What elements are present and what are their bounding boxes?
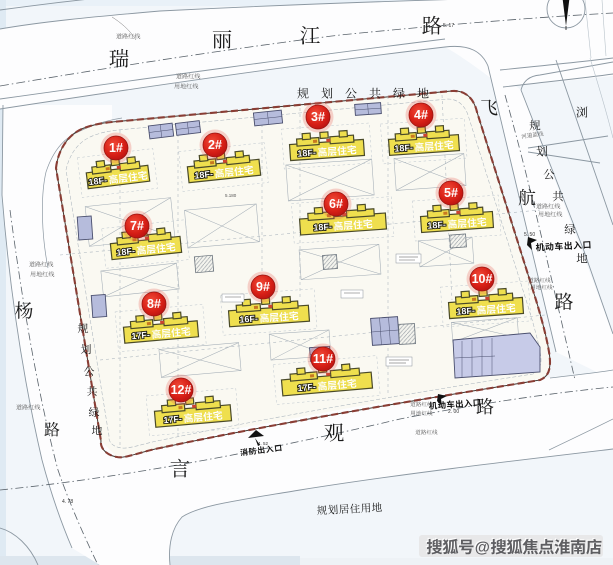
svg-text:18F-: 18F- [313,221,332,232]
svg-text:8#: 8# [147,297,161,311]
svg-text:18F-: 18F- [116,246,135,258]
svg-text:5. 17: 5. 17 [443,23,454,29]
svg-text:@: @ [475,539,490,556]
svg-text:4. 52: 4. 52 [258,441,269,446]
svg-text:17F-: 17F- [131,330,150,342]
svg-text:17F-: 17F- [297,382,316,394]
svg-text:18F-: 18F- [194,169,213,181]
svg-text:4#: 4# [414,108,428,122]
svg-text:18F-: 18F- [297,147,316,158]
svg-text:5.180: 5.180 [225,193,237,198]
svg-text:9#: 9# [256,280,270,294]
svg-text:3#: 3# [311,110,325,124]
svg-text:16F-: 16F- [239,313,258,324]
svg-text:2. 00: 2. 00 [448,409,459,415]
svg-text:5. 50: 5. 50 [524,232,535,238]
svg-text:12#: 12# [171,383,192,397]
svg-text:17F-: 17F- [163,414,182,426]
svg-text:7#: 7# [130,219,144,233]
svg-text:4. 78: 4. 78 [62,499,73,505]
svg-text:5#: 5# [444,186,458,200]
svg-text:18F-: 18F- [456,305,475,316]
svg-text:2#: 2# [208,138,222,152]
svg-text:18F-: 18F- [394,142,413,153]
svg-text:6#: 6# [329,197,343,211]
svg-text:10#: 10# [472,272,493,286]
svg-text:18F-: 18F- [427,219,446,230]
svg-text:11#: 11# [313,352,333,366]
svg-text:1#: 1# [109,141,123,155]
